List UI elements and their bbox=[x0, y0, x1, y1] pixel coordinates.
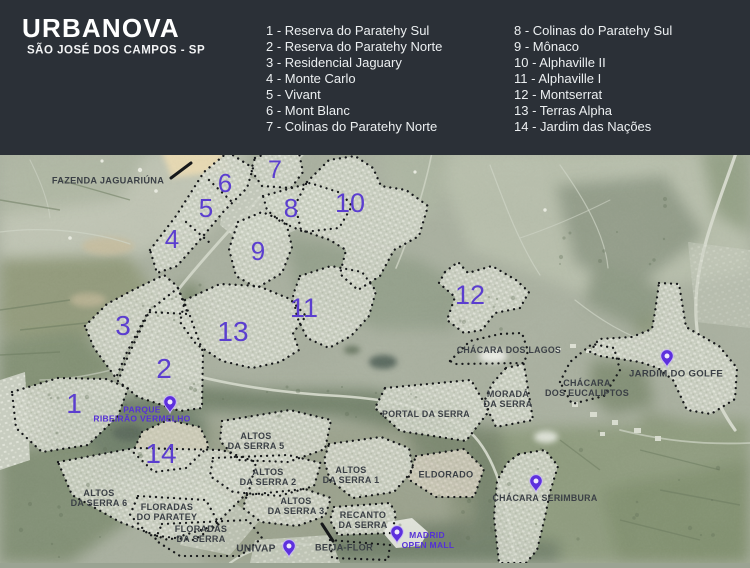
svg-text:JARDIM DO GOLFE: JARDIM DO GOLFE bbox=[629, 369, 723, 380]
svg-text:FAZENDA JAGUARIÚNA: FAZENDA JAGUARIÚNA bbox=[52, 174, 164, 185]
svg-text:RIBEIRÃO VERMELHO: RIBEIRÃO VERMELHO bbox=[93, 414, 190, 424]
svg-text:DA SERRA: DA SERRA bbox=[483, 399, 532, 409]
svg-text:CHÁCARA DOS LAGOS: CHÁCARA DOS LAGOS bbox=[457, 345, 561, 355]
svg-text:10: 10 bbox=[335, 188, 365, 218]
svg-text:ALTOS: ALTOS bbox=[252, 467, 283, 477]
svg-text:DA SERRA 2: DA SERRA 2 bbox=[240, 477, 297, 487]
svg-text:DA SERRA 1: DA SERRA 1 bbox=[323, 475, 380, 485]
svg-text:13: 13 bbox=[217, 316, 248, 347]
svg-text:OPEN MALL: OPEN MALL bbox=[402, 540, 455, 550]
svg-text:9: 9 bbox=[251, 236, 265, 266]
svg-text:DOS EUCALIPTOS: DOS EUCALIPTOS bbox=[545, 388, 629, 398]
svg-text:DA SERRA: DA SERRA bbox=[176, 534, 225, 544]
svg-text:3: 3 bbox=[115, 310, 131, 341]
svg-text:14: 14 bbox=[145, 438, 176, 469]
svg-text:DO PARATEY: DO PARATEY bbox=[137, 512, 198, 522]
svg-text:ELDORADO: ELDORADO bbox=[419, 469, 474, 479]
svg-text:SÃO JOSÉ DOS CAMPOS - SP: SÃO JOSÉ DOS CAMPOS - SP bbox=[27, 44, 205, 57]
svg-text:BEIJA-FLOR: BEIJA-FLOR bbox=[315, 542, 373, 552]
svg-text:7: 7 bbox=[268, 156, 282, 184]
svg-text:MADRID: MADRID bbox=[409, 530, 445, 540]
svg-text:11: 11 bbox=[290, 293, 318, 323]
svg-text:RECANTO: RECANTO bbox=[340, 510, 386, 520]
svg-text:14 - Jardim das Nações: 14 - Jardim das Nações bbox=[514, 119, 652, 134]
svg-text:1 - Reserva do Paratehy Sul: 1 - Reserva do Paratehy Sul bbox=[266, 23, 429, 38]
svg-text:MORADÁ: MORADÁ bbox=[487, 389, 529, 399]
svg-text:DA SERRA 5: DA SERRA 5 bbox=[228, 441, 285, 451]
svg-text:4 - Monte Carlo: 4 - Monte Carlo bbox=[266, 71, 356, 86]
svg-text:2: 2 bbox=[156, 353, 172, 384]
svg-text:DA SERRA 3: DA SERRA 3 bbox=[268, 506, 325, 516]
svg-text:12: 12 bbox=[455, 280, 485, 310]
svg-text:ALTOS: ALTOS bbox=[280, 496, 311, 506]
svg-text:7 - Colinas do Paratehy Norte: 7 - Colinas do Paratehy Norte bbox=[266, 119, 437, 134]
svg-text:UNIVAP: UNIVAP bbox=[236, 544, 276, 555]
svg-text:ALTOS: ALTOS bbox=[335, 465, 366, 475]
svg-text:CHÁCARA: CHÁCARA bbox=[563, 378, 611, 388]
svg-text:10 - Alphaville II: 10 - Alphaville II bbox=[514, 55, 606, 70]
svg-text:9 - Mônaco: 9 - Mônaco bbox=[514, 39, 579, 54]
svg-text:13 - Terras Alpha: 13 - Terras Alpha bbox=[514, 103, 613, 118]
svg-text:CHÁCARA SERIMBURA: CHÁCARA SERIMBURA bbox=[493, 493, 598, 503]
svg-text:3 - Residencial Jaguary: 3 - Residencial Jaguary bbox=[266, 55, 402, 70]
svg-text:4: 4 bbox=[165, 224, 179, 254]
svg-text:12 - Montserrat: 12 - Montserrat bbox=[514, 87, 603, 102]
svg-text:PORTAL DA SERRA: PORTAL DA SERRA bbox=[382, 409, 470, 419]
svg-text:FLORADAS: FLORADAS bbox=[141, 502, 193, 512]
svg-text:1: 1 bbox=[66, 388, 82, 419]
svg-text:6 - Mont Blanc: 6 - Mont Blanc bbox=[266, 103, 350, 118]
svg-text:8 - Colinas do Paratehy Sul: 8 - Colinas do Paratehy Sul bbox=[514, 23, 672, 38]
svg-text:ALTOS: ALTOS bbox=[83, 488, 114, 498]
svg-text:2 - Reserva do Paratehy Norte: 2 - Reserva do Paratehy Norte bbox=[266, 39, 442, 54]
svg-text:URBANOVA: URBANOVA bbox=[22, 13, 180, 43]
svg-text:11 - Alphaville I: 11 - Alphaville I bbox=[514, 71, 601, 86]
svg-text:ALTOS: ALTOS bbox=[240, 431, 271, 441]
svg-text:FLORADAS: FLORADAS bbox=[175, 524, 227, 534]
svg-text:5 - Vivant: 5 - Vivant bbox=[266, 87, 321, 102]
svg-text:DA SERRA: DA SERRA bbox=[338, 520, 387, 530]
svg-text:6: 6 bbox=[218, 168, 232, 198]
svg-text:5: 5 bbox=[199, 193, 213, 223]
svg-text:DA SERRA 6: DA SERRA 6 bbox=[71, 498, 128, 508]
svg-text:8: 8 bbox=[284, 193, 298, 223]
